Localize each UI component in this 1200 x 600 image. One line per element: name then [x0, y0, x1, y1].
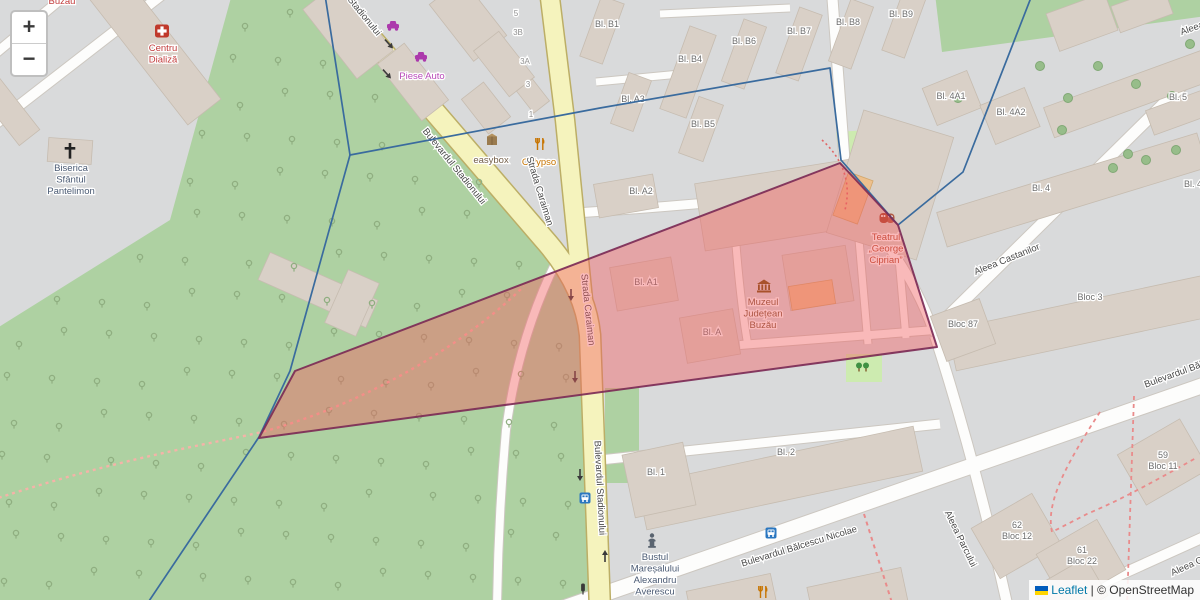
- poi-label: Bustul: [642, 552, 668, 563]
- block-label: Bl. 4A1: [936, 91, 965, 101]
- block-label: Bl. A2: [629, 186, 653, 196]
- block-label: Bl. 2: [777, 447, 795, 457]
- block-label: Bl. B8: [836, 17, 860, 27]
- tree-icon: [1124, 150, 1133, 159]
- map-tiles[interactable]: 53B3A31Bl. B1Bl. B4Bl. B6Bl. B7Bl. B8Bl.…: [0, 0, 1200, 600]
- leaflet-link[interactable]: Leaflet: [1051, 583, 1087, 597]
- poi-label: Sfântul: [56, 175, 86, 186]
- block-label: Bl. 4: [1184, 179, 1200, 189]
- poi-label: Mareșalului: [631, 564, 680, 575]
- zoom-control: + −: [10, 10, 48, 77]
- block-label: Bl. B7: [787, 26, 811, 36]
- tree-icon: [1132, 80, 1141, 89]
- poi-label: Piese Auto: [399, 71, 444, 82]
- block-label: Bl. B4: [678, 54, 702, 64]
- attribution-bar: Leaflet | © OpenStreetMap: [1029, 580, 1200, 600]
- tree-icon: [1036, 62, 1045, 71]
- tree-icon: [1094, 62, 1103, 71]
- house-number: 5: [514, 9, 519, 18]
- block-label: Bloc 22: [1067, 556, 1097, 566]
- block-label: Bl. 1: [647, 467, 665, 477]
- bus-stop-icon: [766, 528, 777, 539]
- poi-label: Buzău: [49, 0, 76, 7]
- tree-icon: [1109, 164, 1118, 173]
- block-label: 62: [1012, 520, 1022, 530]
- poi-label: Dializă: [149, 55, 178, 66]
- block-label: Bl. B5: [691, 119, 715, 129]
- poi-label: Pantelimon: [47, 186, 95, 197]
- block-label: Bloc 11: [1148, 461, 1177, 471]
- medical-cross-icon: [155, 25, 169, 38]
- tree-icon: [1064, 94, 1073, 103]
- building: [622, 442, 696, 517]
- house-number: 1: [529, 110, 534, 119]
- house-number: 3A: [520, 57, 530, 66]
- block-label: Bl. B6: [732, 36, 756, 46]
- poi-label: Averescu: [635, 587, 674, 598]
- block-label: Bloc 3: [1077, 292, 1102, 302]
- poi-label: Alexandru: [634, 575, 677, 586]
- poi-label: Centru: [149, 43, 178, 54]
- block-label: Bloc 87: [948, 319, 978, 329]
- attribution-separator: |: [1087, 583, 1097, 597]
- block-label: Bl. B9: [889, 9, 913, 19]
- tree-icon: [1186, 40, 1195, 49]
- block-label: Bl. 5: [1169, 92, 1187, 102]
- block-label: 61: [1077, 545, 1087, 555]
- house-number: 3B: [513, 28, 523, 37]
- block-label: 59: [1158, 450, 1168, 460]
- bus-stop-icon: [580, 493, 591, 504]
- osm-credit[interactable]: © OpenStreetMap: [1097, 583, 1194, 597]
- block-label: Bloc 12: [1002, 531, 1032, 541]
- zoom-in-button[interactable]: +: [12, 12, 46, 44]
- leaflet-map[interactable]: 53B3A31Bl. B1Bl. B4Bl. B6Bl. B7Bl. B8Bl.…: [0, 0, 1200, 600]
- house-number: 3: [526, 80, 531, 89]
- block-label: Bl. 4A2: [996, 107, 1025, 117]
- block-label: Bl. B1: [595, 19, 619, 29]
- zoom-out-button[interactable]: −: [12, 44, 46, 75]
- tree-icon: [1058, 126, 1067, 135]
- ukraine-flag-icon: [1035, 586, 1048, 595]
- block-label: Bl. 4: [1032, 183, 1050, 193]
- tree-icon: [1142, 156, 1151, 165]
- poi-label: Biserica: [54, 163, 89, 174]
- tree-icon: [1172, 146, 1181, 155]
- poi-label: easybox: [473, 155, 509, 166]
